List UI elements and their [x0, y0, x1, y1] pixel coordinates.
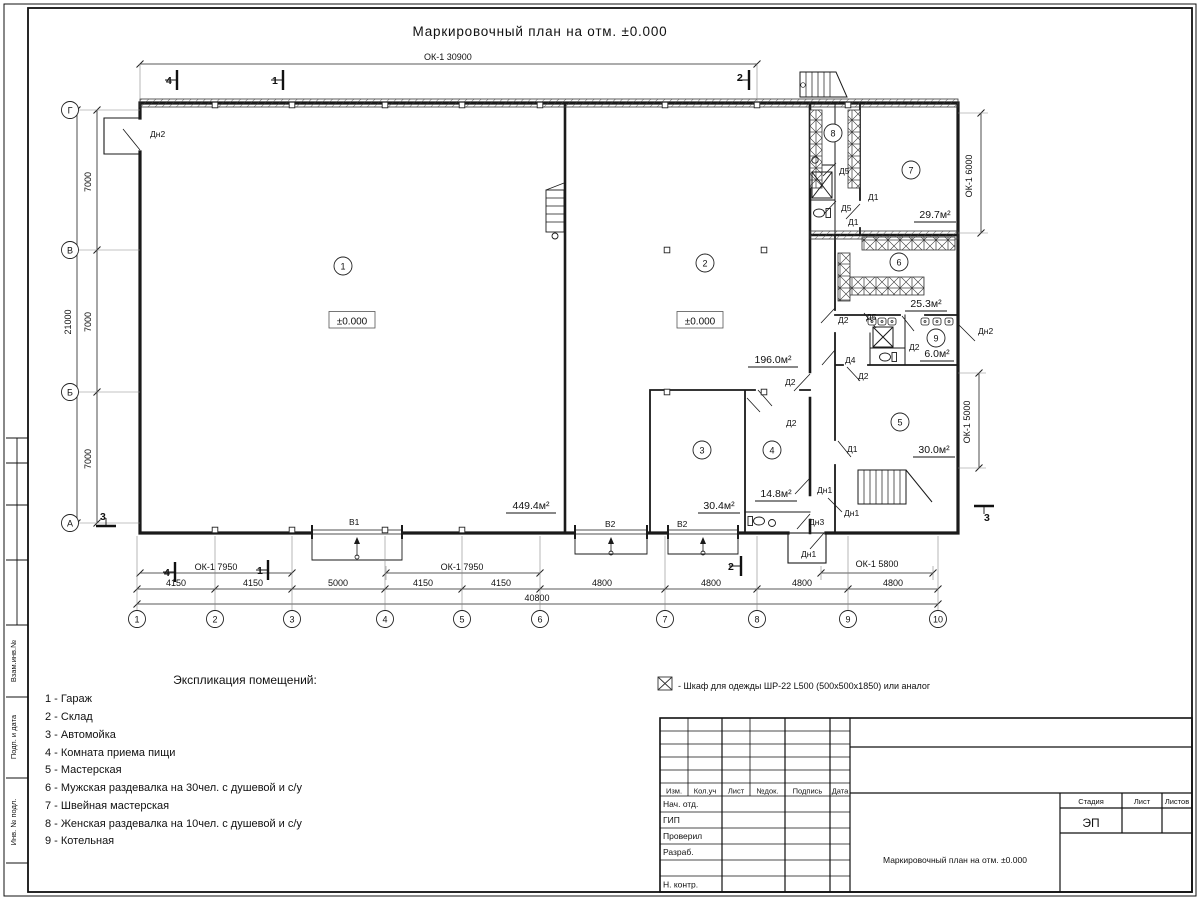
- cabinet-note: - Шкаф для одежды ШР-22 L500 (500x500x18…: [678, 681, 931, 691]
- grid-axis-label: Б: [67, 388, 73, 398]
- door-label: Дн1: [817, 485, 832, 495]
- door-label: Д4: [845, 355, 856, 365]
- fixtures: [104, 72, 932, 563]
- sink: [945, 318, 953, 325]
- section-mark: 2: [737, 72, 743, 84]
- sink: [878, 318, 886, 325]
- titleblock-role: Разраб.: [663, 847, 694, 857]
- drawing-title: Маркировочный план на отм. ±0.000: [413, 24, 668, 39]
- door-label: Д2: [909, 342, 920, 352]
- column-markers: [212, 102, 851, 533]
- door-label: Д2: [785, 377, 796, 387]
- exterior-stair: [800, 72, 847, 97]
- door-label: Д5: [839, 166, 850, 176]
- gate-label: В2: [677, 519, 688, 529]
- elevation-boxes: [329, 222, 956, 513]
- room-number: 8: [830, 129, 835, 139]
- dim-label: 4800: [792, 578, 812, 588]
- sheet-frame: [4, 4, 1196, 896]
- grid-axis-label: 9: [845, 615, 850, 625]
- titleblock-header: Дата: [832, 787, 849, 796]
- room-area-label: 196.0м²: [755, 354, 792, 366]
- section-mark: 3: [100, 511, 106, 523]
- legend-item: 4 - Комната приема пищи: [45, 747, 175, 759]
- grid-axis-label: 8: [754, 615, 759, 625]
- grid-axis-label: 10: [933, 615, 943, 625]
- column-marker: [754, 102, 760, 108]
- sink: [921, 318, 929, 325]
- door-swings: [123, 129, 975, 549]
- titleblock-role: Н. контр.: [663, 880, 698, 890]
- dim-label: 4150: [491, 578, 511, 588]
- column-marker: [289, 527, 295, 533]
- shaft-box: [873, 327, 893, 347]
- section-mark: 3: [984, 512, 990, 524]
- titleblock-doc-title: Маркировочный план на отм. ±0.000: [883, 855, 1027, 865]
- stage-label: Стадия: [1078, 797, 1104, 806]
- floor-plan-walls: [140, 103, 958, 538]
- door-label: Дн2: [978, 326, 993, 336]
- column-marker: [664, 389, 670, 395]
- sheets-label: Листов: [1165, 797, 1189, 806]
- ribbon-window-band: [140, 99, 958, 107]
- room-area-label: 14.8м²: [760, 488, 792, 500]
- toilet: [748, 517, 765, 526]
- room-area-label: 6.0м²: [924, 348, 950, 360]
- grid-axis-label: 4: [382, 615, 387, 625]
- wall-ladder: [546, 183, 564, 239]
- door-label: Д1: [848, 217, 859, 227]
- door-label: Д2: [786, 418, 797, 428]
- cabinet-symbol: [658, 677, 672, 690]
- door-label: Дн3: [809, 517, 824, 527]
- gate-label: В1: [349, 517, 360, 527]
- door-label: Дн2: [150, 129, 165, 139]
- grid-axis-label: В: [67, 246, 73, 256]
- apron: [312, 538, 738, 560]
- dim-total-label: 21000: [63, 309, 73, 334]
- stage-value: ЭП: [1082, 816, 1099, 830]
- section-mark: 4: [166, 75, 172, 87]
- elevation-mark: ±0.000: [685, 317, 716, 328]
- grid-axis-label: 7: [662, 615, 667, 625]
- toilet: [880, 353, 897, 362]
- legend-item: 1 - Гараж: [45, 693, 93, 705]
- section-mark: 1: [257, 565, 263, 577]
- room-area-label: 25.3м²: [910, 298, 942, 310]
- dim-label: 7000: [83, 312, 93, 332]
- room-number: 3: [699, 446, 704, 456]
- dim-label: 4150: [166, 578, 186, 588]
- door-label: Дн1: [844, 508, 859, 518]
- dim-label: 4150: [413, 578, 433, 588]
- door-label: Д1: [847, 444, 858, 454]
- side-stamp-label: Взам.инв.№: [9, 640, 18, 682]
- column-marker: [289, 102, 295, 108]
- column-marker: [761, 389, 767, 395]
- locker-row: [838, 253, 850, 301]
- column-marker: [662, 102, 668, 108]
- titleblock-lines: [660, 718, 1192, 892]
- grid-axis-label: А: [67, 519, 73, 529]
- column-marker: [664, 247, 670, 253]
- column-marker: [761, 247, 767, 253]
- sink: [933, 318, 941, 325]
- entry-canopy: [104, 118, 140, 154]
- door-label: Дн1: [801, 549, 816, 559]
- dim-label: 7000: [83, 449, 93, 469]
- apron-arrows: [354, 537, 706, 559]
- titleblock-role: ГИП: [663, 815, 680, 825]
- dim-total-label: 40800: [524, 593, 549, 603]
- column-marker: [212, 102, 218, 108]
- window-dim-label: ОК-1 7950: [195, 562, 238, 572]
- column-marker: [212, 527, 218, 533]
- room-area-label: 30.0м²: [918, 444, 950, 456]
- column-marker: [537, 102, 543, 108]
- legend-item: 7 - Швейная мастерская: [45, 800, 169, 812]
- door-label: Д5: [841, 203, 852, 213]
- grid-axis-label: 6: [537, 615, 542, 625]
- grid-axis-label: Г: [68, 106, 73, 116]
- elevation-mark: ±0.000: [337, 317, 368, 328]
- door-label: Д1: [868, 192, 879, 202]
- side-stamp-label: Инв. № подл.: [9, 799, 18, 846]
- room-number: 2: [702, 259, 707, 269]
- titleblock-role: Нач. отд.: [663, 799, 698, 809]
- legend-title: Экспликация помещений:: [173, 673, 317, 687]
- text-layer: Маркировочный план на отм. ±0.000ОК-1 30…: [9, 24, 1189, 890]
- column-marker: [382, 102, 388, 108]
- door-label: Д2: [858, 371, 869, 381]
- window-total-label: ОК-1 30900: [424, 52, 472, 62]
- washbasin-row: [868, 318, 953, 325]
- legend-item: 3 - Автомойка: [45, 729, 117, 741]
- window-dim-label: ОК-1 5800: [856, 559, 899, 569]
- legend-item: 6 - Мужская раздевалка на 30чел. с душев…: [45, 782, 302, 794]
- door-label: Д2: [838, 315, 849, 325]
- grid-axis-label: 2: [212, 615, 217, 625]
- legend-item: 9 - Котельная: [45, 835, 114, 847]
- titleblock-header: Кол.уч: [694, 787, 717, 796]
- locker-row: [850, 277, 924, 295]
- room-area-label: 449.4м²: [513, 500, 550, 512]
- dim-label: 4800: [883, 578, 903, 588]
- section-mark: 4: [164, 567, 170, 579]
- gate-label: В2: [605, 519, 616, 529]
- room-area-label: 30.4м²: [703, 500, 735, 512]
- sheet-label: Лист: [1134, 797, 1151, 806]
- room-number: 5: [897, 418, 902, 428]
- dim-label: 5000: [328, 578, 348, 588]
- sink: [769, 520, 776, 527]
- dim-label: 4800: [701, 578, 721, 588]
- column-marker: [845, 102, 851, 108]
- window-dim-label: ОК-1 6000: [964, 155, 974, 198]
- area-underlines: [506, 222, 956, 513]
- room-number: 7: [908, 166, 913, 176]
- room-number: 4: [769, 446, 774, 456]
- column-marker: [459, 102, 465, 108]
- section-mark: 2: [728, 561, 734, 573]
- column-marker: [459, 527, 465, 533]
- titleblock-header: №док.: [757, 787, 779, 796]
- locker-row: [862, 237, 955, 250]
- locker-row: [848, 110, 860, 188]
- grid-axis-label: 1: [134, 615, 139, 625]
- dim-label: 7000: [83, 172, 93, 192]
- dim-label: 4800: [592, 578, 612, 588]
- grid-axis-label: 3: [289, 615, 294, 625]
- dim-label: 4150: [243, 578, 263, 588]
- titleblock-header: Лист: [728, 787, 745, 796]
- titleblock-header: Изм.: [666, 787, 682, 796]
- titleblock-header: Подпись: [793, 787, 823, 796]
- section-mark: 1: [272, 75, 278, 87]
- window-dim-label: ОК-1 5000: [962, 401, 972, 444]
- stairs: [858, 470, 932, 504]
- titleblock-role: Проверил: [663, 831, 702, 841]
- window-dim-label: ОК-1 7950: [441, 562, 484, 572]
- legend-item: 8 - Женская раздевалка на 10чел. с душев…: [45, 818, 302, 830]
- room-number: 9: [933, 334, 938, 344]
- column-marker: [382, 527, 388, 533]
- legend-item: 2 - Склад: [45, 711, 93, 723]
- grid-axis-label: 5: [459, 615, 464, 625]
- door-label: Д5: [866, 312, 877, 322]
- room-area-label: 29.7м²: [919, 209, 951, 221]
- drawing-sheet: Маркировочный план на отм. ±0.000ОК-1 30…: [0, 0, 1200, 900]
- room-number: 1: [340, 262, 345, 272]
- side-stamp-label: Подп. и дата: [9, 714, 18, 759]
- sink: [888, 318, 896, 325]
- room-number: 6: [896, 258, 901, 268]
- legend-item: 5 - Мастерская: [45, 764, 122, 776]
